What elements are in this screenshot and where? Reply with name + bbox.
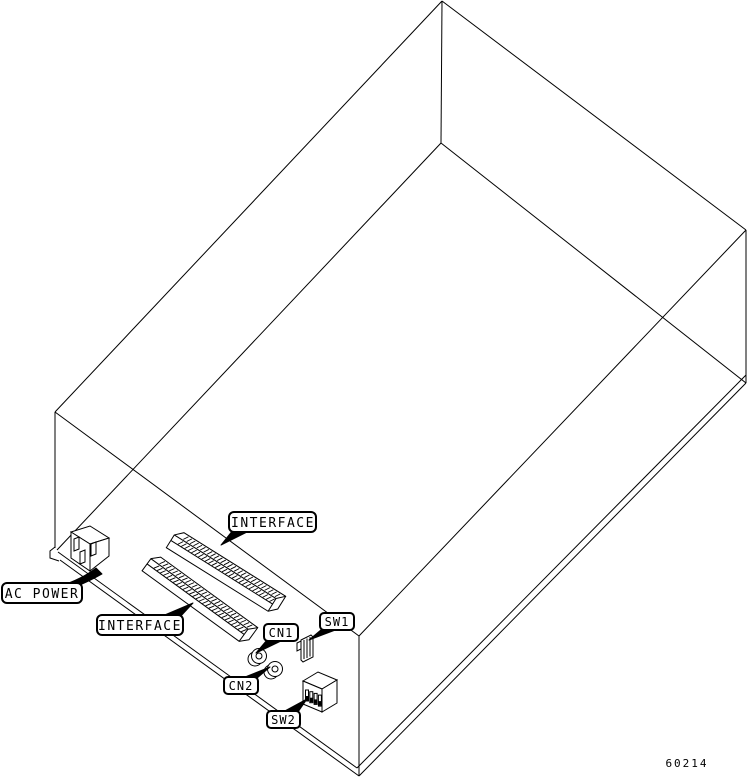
figure-number: 60214 [665, 757, 708, 770]
edge-top-left [55, 1, 442, 412]
ac-power-inlet [71, 526, 109, 571]
edge-rear-vertical [441, 1, 442, 143]
seam-right-outer [359, 383, 746, 776]
callout-label: CN1 [269, 626, 294, 640]
callout-label: INTERFACE [231, 516, 315, 531]
callout-sw2: SW2 [267, 699, 307, 728]
sw1-knob [297, 641, 301, 651]
seam-front-inner [58, 552, 357, 768]
callout-label: SW1 [325, 615, 350, 629]
callout-label: INTERFACE [98, 619, 182, 634]
callout-label: CN2 [229, 679, 254, 693]
callout-interface-top: INTERFACE [221, 512, 316, 545]
edge-hidden-right [441, 143, 746, 383]
device-isometric-diagram: INTERFACE AC POWER INTERFACE CN1 SW1 CN2… [0, 0, 749, 783]
edge-top-right [442, 1, 746, 230]
callout-label: AC POWER [5, 587, 80, 602]
sw2-dip-switch [303, 672, 337, 712]
callout-sw1: SW1 [309, 613, 354, 640]
callout-label: SW2 [271, 713, 296, 727]
inlet-slot [80, 550, 85, 564]
diagram-page: INTERFACE AC POWER INTERFACE CN1 SW1 CN2… [0, 0, 749, 783]
edge-hidden-left [57, 143, 441, 550]
callout-cn1: CN1 [256, 624, 298, 653]
inlet-slot [91, 542, 96, 556]
callout-cn2: CN2 [224, 667, 270, 694]
inlet-slot [74, 537, 79, 551]
chassis-wireframe [50, 1, 746, 776]
callout-interface-bottom: INTERFACE [97, 603, 193, 635]
